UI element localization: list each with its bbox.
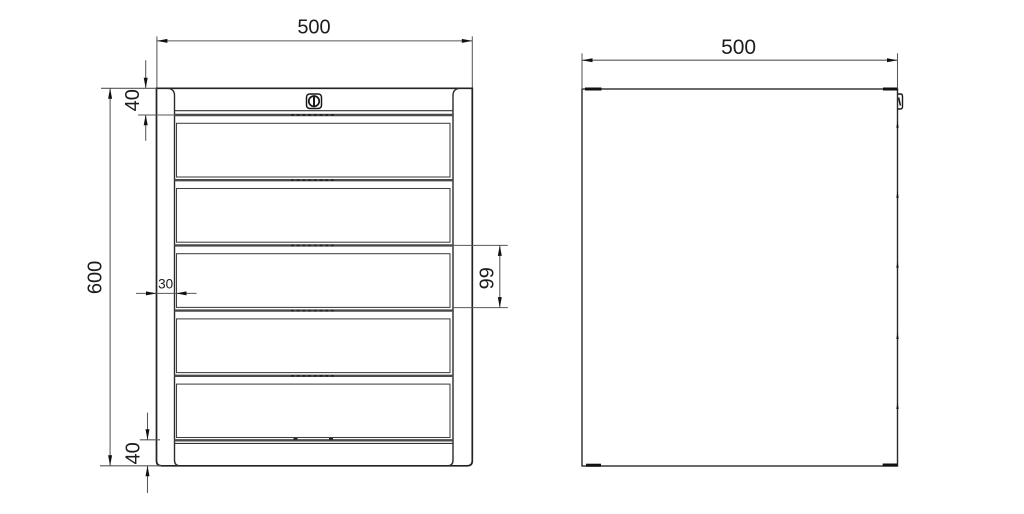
svg-text:30: 30 [158, 276, 173, 291]
svg-text:99: 99 [477, 267, 499, 289]
svg-text:40: 40 [123, 442, 145, 464]
svg-text:600: 600 [85, 261, 107, 294]
svg-text:500: 500 [297, 16, 330, 38]
svg-text:500: 500 [721, 36, 756, 59]
svg-text:40: 40 [122, 89, 144, 111]
